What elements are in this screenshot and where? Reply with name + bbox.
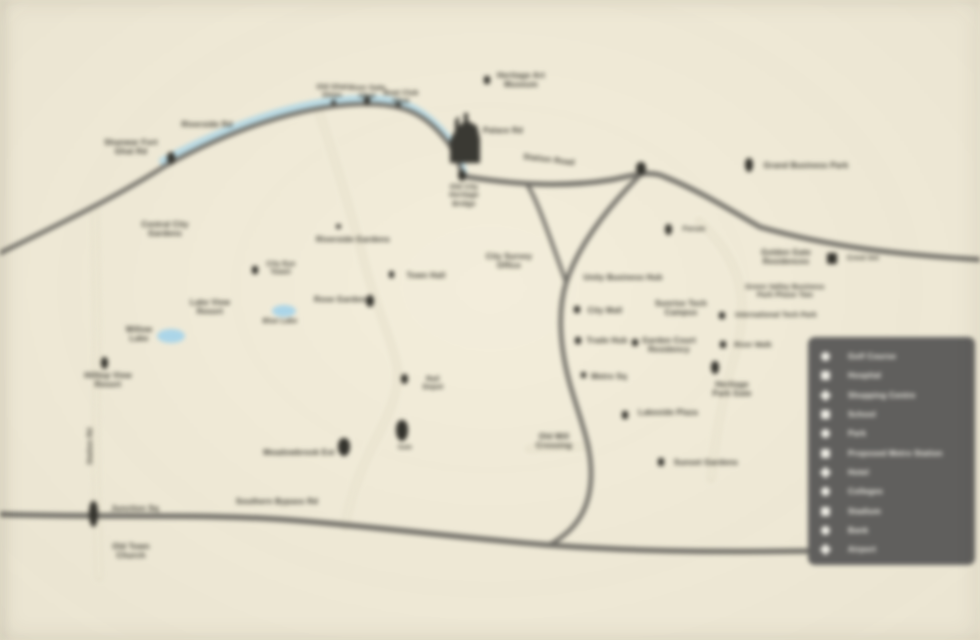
legend-label: Proposed Metro Station	[848, 449, 943, 458]
map-label: City Mall	[588, 306, 623, 315]
location-map: Shanwar Fort Ghat RdRiverside RdCentral …	[0, 0, 980, 640]
map-label: Golden Gate Residences	[761, 248, 811, 267]
legend-square-icon	[821, 410, 830, 419]
legend-circle-icon	[821, 429, 830, 438]
map-label: Willow Lake	[126, 325, 152, 344]
legend-label: Stadium	[848, 507, 881, 516]
map-label: Green Valley Business Park Phase Two	[745, 284, 824, 301]
map-label: Old Ghat Steps	[316, 84, 347, 101]
legend-square-icon	[821, 507, 830, 516]
map-legend: Golf CourseHospitalShopping CentreSchool…	[808, 337, 975, 565]
map-label: Boat Club Ghat	[384, 90, 419, 107]
legend-diamond-icon	[820, 389, 832, 401]
map-label: City Eye Tower	[266, 261, 295, 278]
map-label: Station Road	[523, 152, 575, 168]
map-label: River Walk	[734, 342, 772, 350]
legend-row: Stadium	[808, 501, 975, 520]
legend-row: Airport	[808, 540, 975, 559]
map-label: City Survey Office	[486, 252, 532, 271]
legend-row: Hotel	[808, 463, 975, 482]
legend-row: Proposed Metro Station	[808, 443, 975, 462]
map-label: Station Rd	[87, 428, 95, 465]
legend-row: Golf Course	[808, 347, 975, 366]
map-label: Town Hall	[407, 271, 446, 280]
legend-row: Park	[808, 424, 975, 443]
legend-diamond-icon	[820, 467, 832, 479]
map-label: Rail Depot	[423, 376, 444, 393]
map-label: Meadowbrook Est	[263, 448, 334, 457]
legend-row: Colleges	[808, 482, 975, 501]
legend-label: Hospital	[848, 371, 881, 380]
map-label: Riverside Rd	[181, 120, 232, 129]
legend-diamond-icon	[820, 544, 832, 556]
legend-label: Airport	[848, 545, 876, 554]
legend-square-icon	[821, 449, 830, 458]
map-label: Hilltop View Resort	[84, 371, 132, 390]
legend-row: School	[808, 405, 975, 424]
map-label: Old City Heritage Bridge	[449, 184, 479, 209]
legend-circle-icon	[821, 526, 830, 535]
legend-label: Golf Course	[848, 352, 896, 361]
legend-label: School	[848, 410, 876, 419]
map-label: Gate	[398, 445, 412, 452]
map-label: Central City Gardens	[141, 220, 188, 239]
map-label: Heritage Art Museum	[497, 71, 545, 90]
map-label: Palace Rd	[483, 126, 523, 135]
map-label: Trade Hub	[587, 336, 628, 345]
legend-label: Shopping Centre	[848, 391, 915, 400]
map-label: Rose Garden	[314, 295, 366, 304]
map-label: Old Mill Crossing	[536, 432, 572, 451]
map-label: Lakeside Plaza	[638, 408, 698, 417]
legend-row: Bank	[808, 521, 975, 540]
legend-label: Colleges	[848, 487, 883, 496]
map-label: Old Town Church	[112, 542, 149, 561]
map-label: Riverside Gardens	[316, 235, 390, 244]
map-label: Lake View Resort	[190, 298, 230, 317]
map-label: Unity Business Hub	[583, 273, 662, 282]
map-label: Blue Lake	[263, 318, 298, 326]
legend-circle-icon	[821, 352, 830, 361]
blurred-map-content: Shanwar Fort Ghat RdRiverside RdCentral …	[0, 0, 980, 640]
map-label: Grand Business Park	[764, 161, 849, 170]
legend-label: Bank	[848, 526, 868, 535]
legend-row: Hospital	[808, 366, 975, 385]
map-label: Heritage Park Gate	[712, 380, 751, 399]
map-label: Sunrise Tech Campus	[655, 299, 707, 318]
map-label: Junction Sq	[111, 504, 159, 513]
map-label: River Gate Ghat	[348, 85, 385, 102]
map-label: Crest Inn	[847, 255, 879, 263]
map-label: Forum	[683, 226, 706, 234]
legend-row: Shopping Centre	[808, 386, 975, 405]
legend-square-icon	[821, 371, 830, 380]
map-label: Shanwar Fort Ghat Rd	[104, 138, 158, 157]
legend-circle-icon	[821, 487, 830, 496]
map-label: Metro Sq	[591, 372, 627, 381]
legend-label: Park	[848, 429, 866, 438]
legend-label: Hotel	[848, 468, 869, 477]
map-label: Garden Court Residency	[642, 336, 696, 355]
map-label: Southern Bypass Rd	[236, 497, 318, 506]
map-label: International Tech Park	[735, 312, 817, 320]
map-label: Sunset Gardens	[674, 458, 738, 467]
